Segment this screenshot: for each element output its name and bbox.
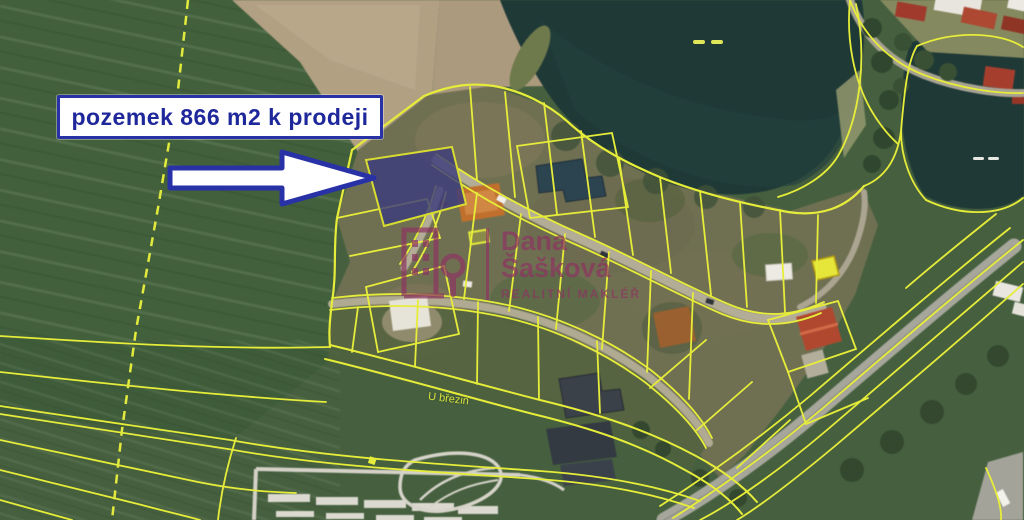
aerial-cadastral-map: pozemek 866 m2 k prodeji Dana Šašková RE… [0, 0, 1024, 520]
callout-label: pozemek 866 m2 k prodeji [57, 95, 383, 139]
arrow-annotation [158, 138, 388, 218]
callout-text: pozemek 866 m2 k prodeji [71, 104, 368, 131]
arrow-shape [170, 152, 374, 204]
map-canvas [0, 0, 1024, 520]
